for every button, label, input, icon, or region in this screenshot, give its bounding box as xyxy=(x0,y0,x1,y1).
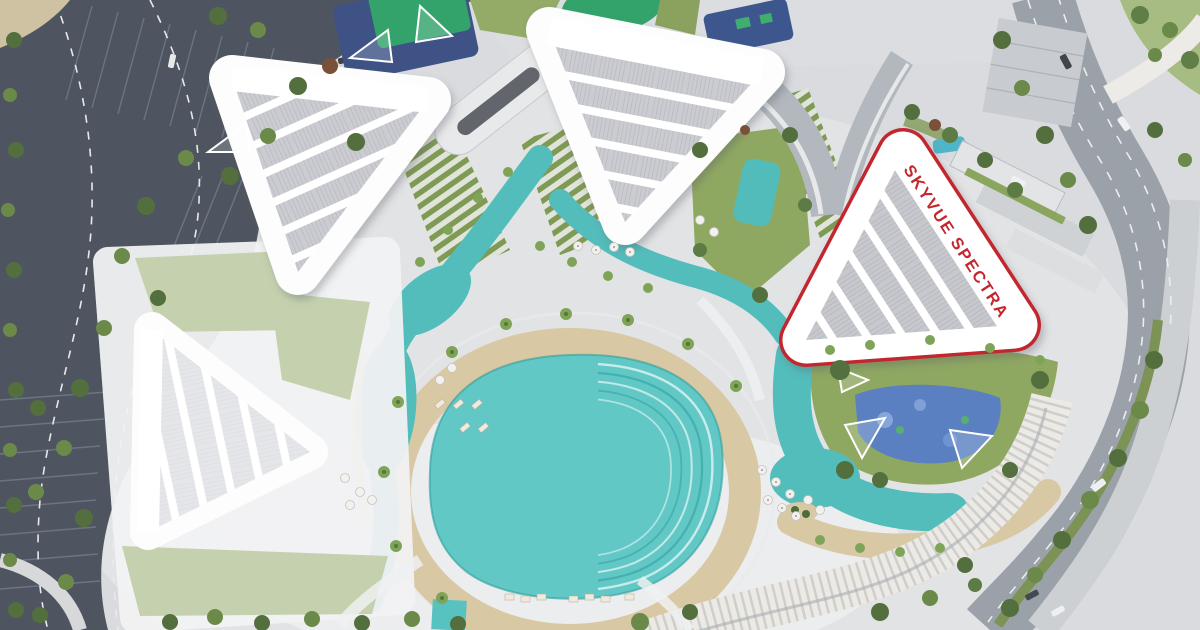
future-phase-wash xyxy=(108,252,400,618)
beach-island xyxy=(782,502,818,522)
central-lagoon-pool xyxy=(430,355,723,599)
future-phase-plot xyxy=(108,250,400,618)
master-plan-aerial-view: SKYVUE SPECTRA xyxy=(0,0,1200,630)
